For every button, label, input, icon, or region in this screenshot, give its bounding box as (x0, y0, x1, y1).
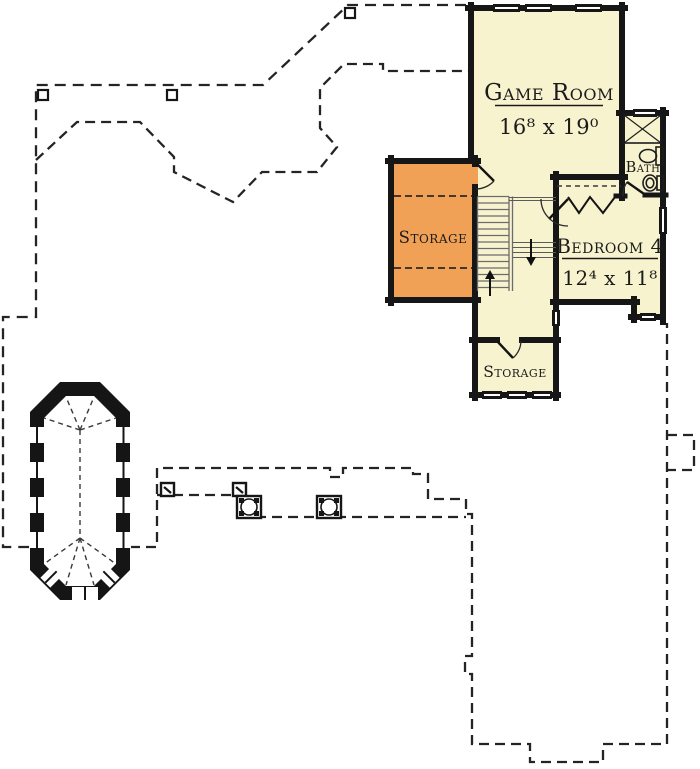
porch-post-small (233, 483, 246, 496)
lower-storage-window (482, 391, 552, 399)
game-room-window (493, 4, 602, 12)
game-room-dims: 16⁸ x 19⁰ (499, 115, 599, 139)
porch-columns (161, 483, 341, 518)
porch-post-small (161, 483, 174, 496)
turret-interior (44, 396, 116, 586)
roof-outline-lower-right (130, 323, 667, 762)
roof-post-marker (38, 90, 48, 100)
chimney-outline (667, 435, 694, 470)
bath-window (633, 109, 657, 117)
bedroom4-label: Bedroom 4 (556, 234, 664, 258)
roof-post-marker (167, 90, 177, 100)
game-room-label: Game Room (484, 80, 614, 106)
porch-column-large (237, 496, 261, 518)
bedroom4-dims: 12⁴ x 11⁸ (562, 266, 657, 290)
hall-window (552, 310, 560, 326)
lower-storage-label: Storage (483, 363, 547, 381)
floor-plan-canvas: Game Room 16⁸ x 19⁰ Bath Bedroom 4 12⁴ x… (0, 0, 700, 769)
bath-label: Bath (626, 160, 661, 176)
floor-plan-page: Game Room 16⁸ x 19⁰ Bath Bedroom 4 12⁴ x… (0, 0, 700, 769)
turret (29, 382, 131, 600)
stair-hall-fill (472, 158, 559, 343)
roof-post-marker (345, 8, 355, 18)
porch-column-large (317, 496, 341, 518)
attic-storage-label: Storage (399, 228, 468, 247)
